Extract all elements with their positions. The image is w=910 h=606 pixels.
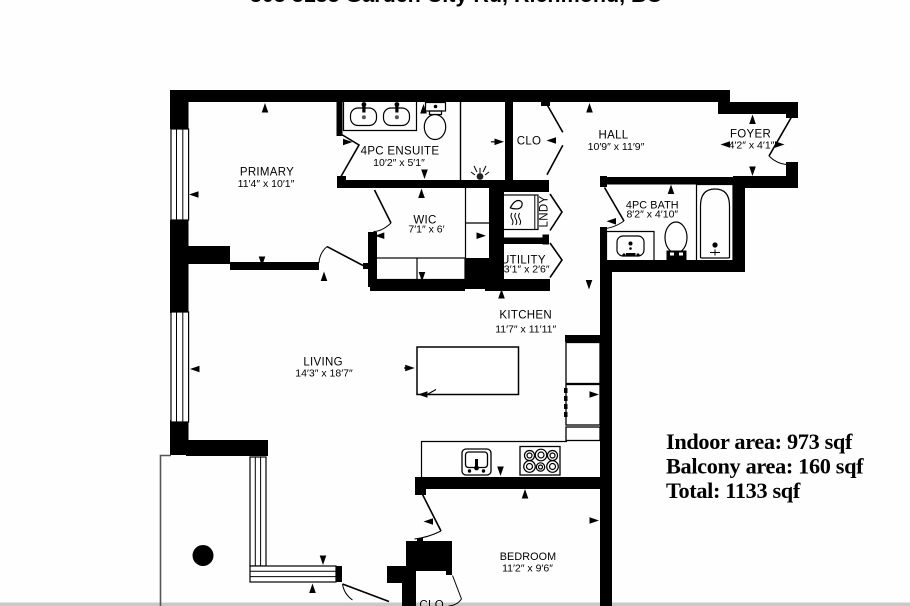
svg-text:CLO: CLO	[517, 136, 542, 148]
svg-text:Total: 1133 sqf: Total: 1133 sqf	[666, 478, 801, 503]
svg-text:CLO: CLO	[419, 600, 444, 606]
svg-text:BEDROOM: BEDROOM	[500, 551, 557, 563]
svg-text:14′3″ x 18′7″: 14′3″ x 18′7″	[295, 368, 353, 380]
svg-text:3′1″ x 2′6″: 3′1″ x 2′6″	[504, 264, 550, 276]
svg-text:HALL: HALL	[599, 130, 629, 142]
svg-text:PRIMARY: PRIMARY	[240, 167, 294, 179]
svg-text:Balcony area: 160 sqf: Balcony area: 160 sqf	[666, 454, 864, 479]
svg-text:LNDY: LNDY	[539, 196, 551, 228]
svg-text:305 5133 Garden City Rd, Richm: 305 5133 Garden City Rd, Richmond, BC	[250, 0, 662, 7]
svg-text:4′2″ x 4′1″: 4′2″ x 4′1″	[729, 140, 775, 152]
svg-text:8′2″ x 4′10″: 8′2″ x 4′10″	[626, 209, 678, 221]
svg-text:KITCHEN: KITCHEN	[499, 310, 552, 322]
svg-text:Indoor area: 973 sqf: Indoor area: 973 sqf	[666, 429, 853, 454]
svg-text:11′2″ x 9′6″: 11′2″ x 9′6″	[502, 563, 553, 575]
svg-text:10′2″ x 5′1″: 10′2″ x 5′1″	[373, 157, 425, 169]
svg-text:11′4″ x 10′1″: 11′4″ x 10′1″	[238, 178, 295, 190]
svg-text:7′1″ x 6′: 7′1″ x 6′	[408, 224, 444, 236]
svg-text:4PC ENSUITE: 4PC ENSUITE	[361, 146, 440, 158]
svg-text:10′9″ x 11′9″: 10′9″ x 11′9″	[588, 141, 645, 153]
svg-text:11′7″ x 11′11″: 11′7″ x 11′11″	[495, 324, 556, 336]
